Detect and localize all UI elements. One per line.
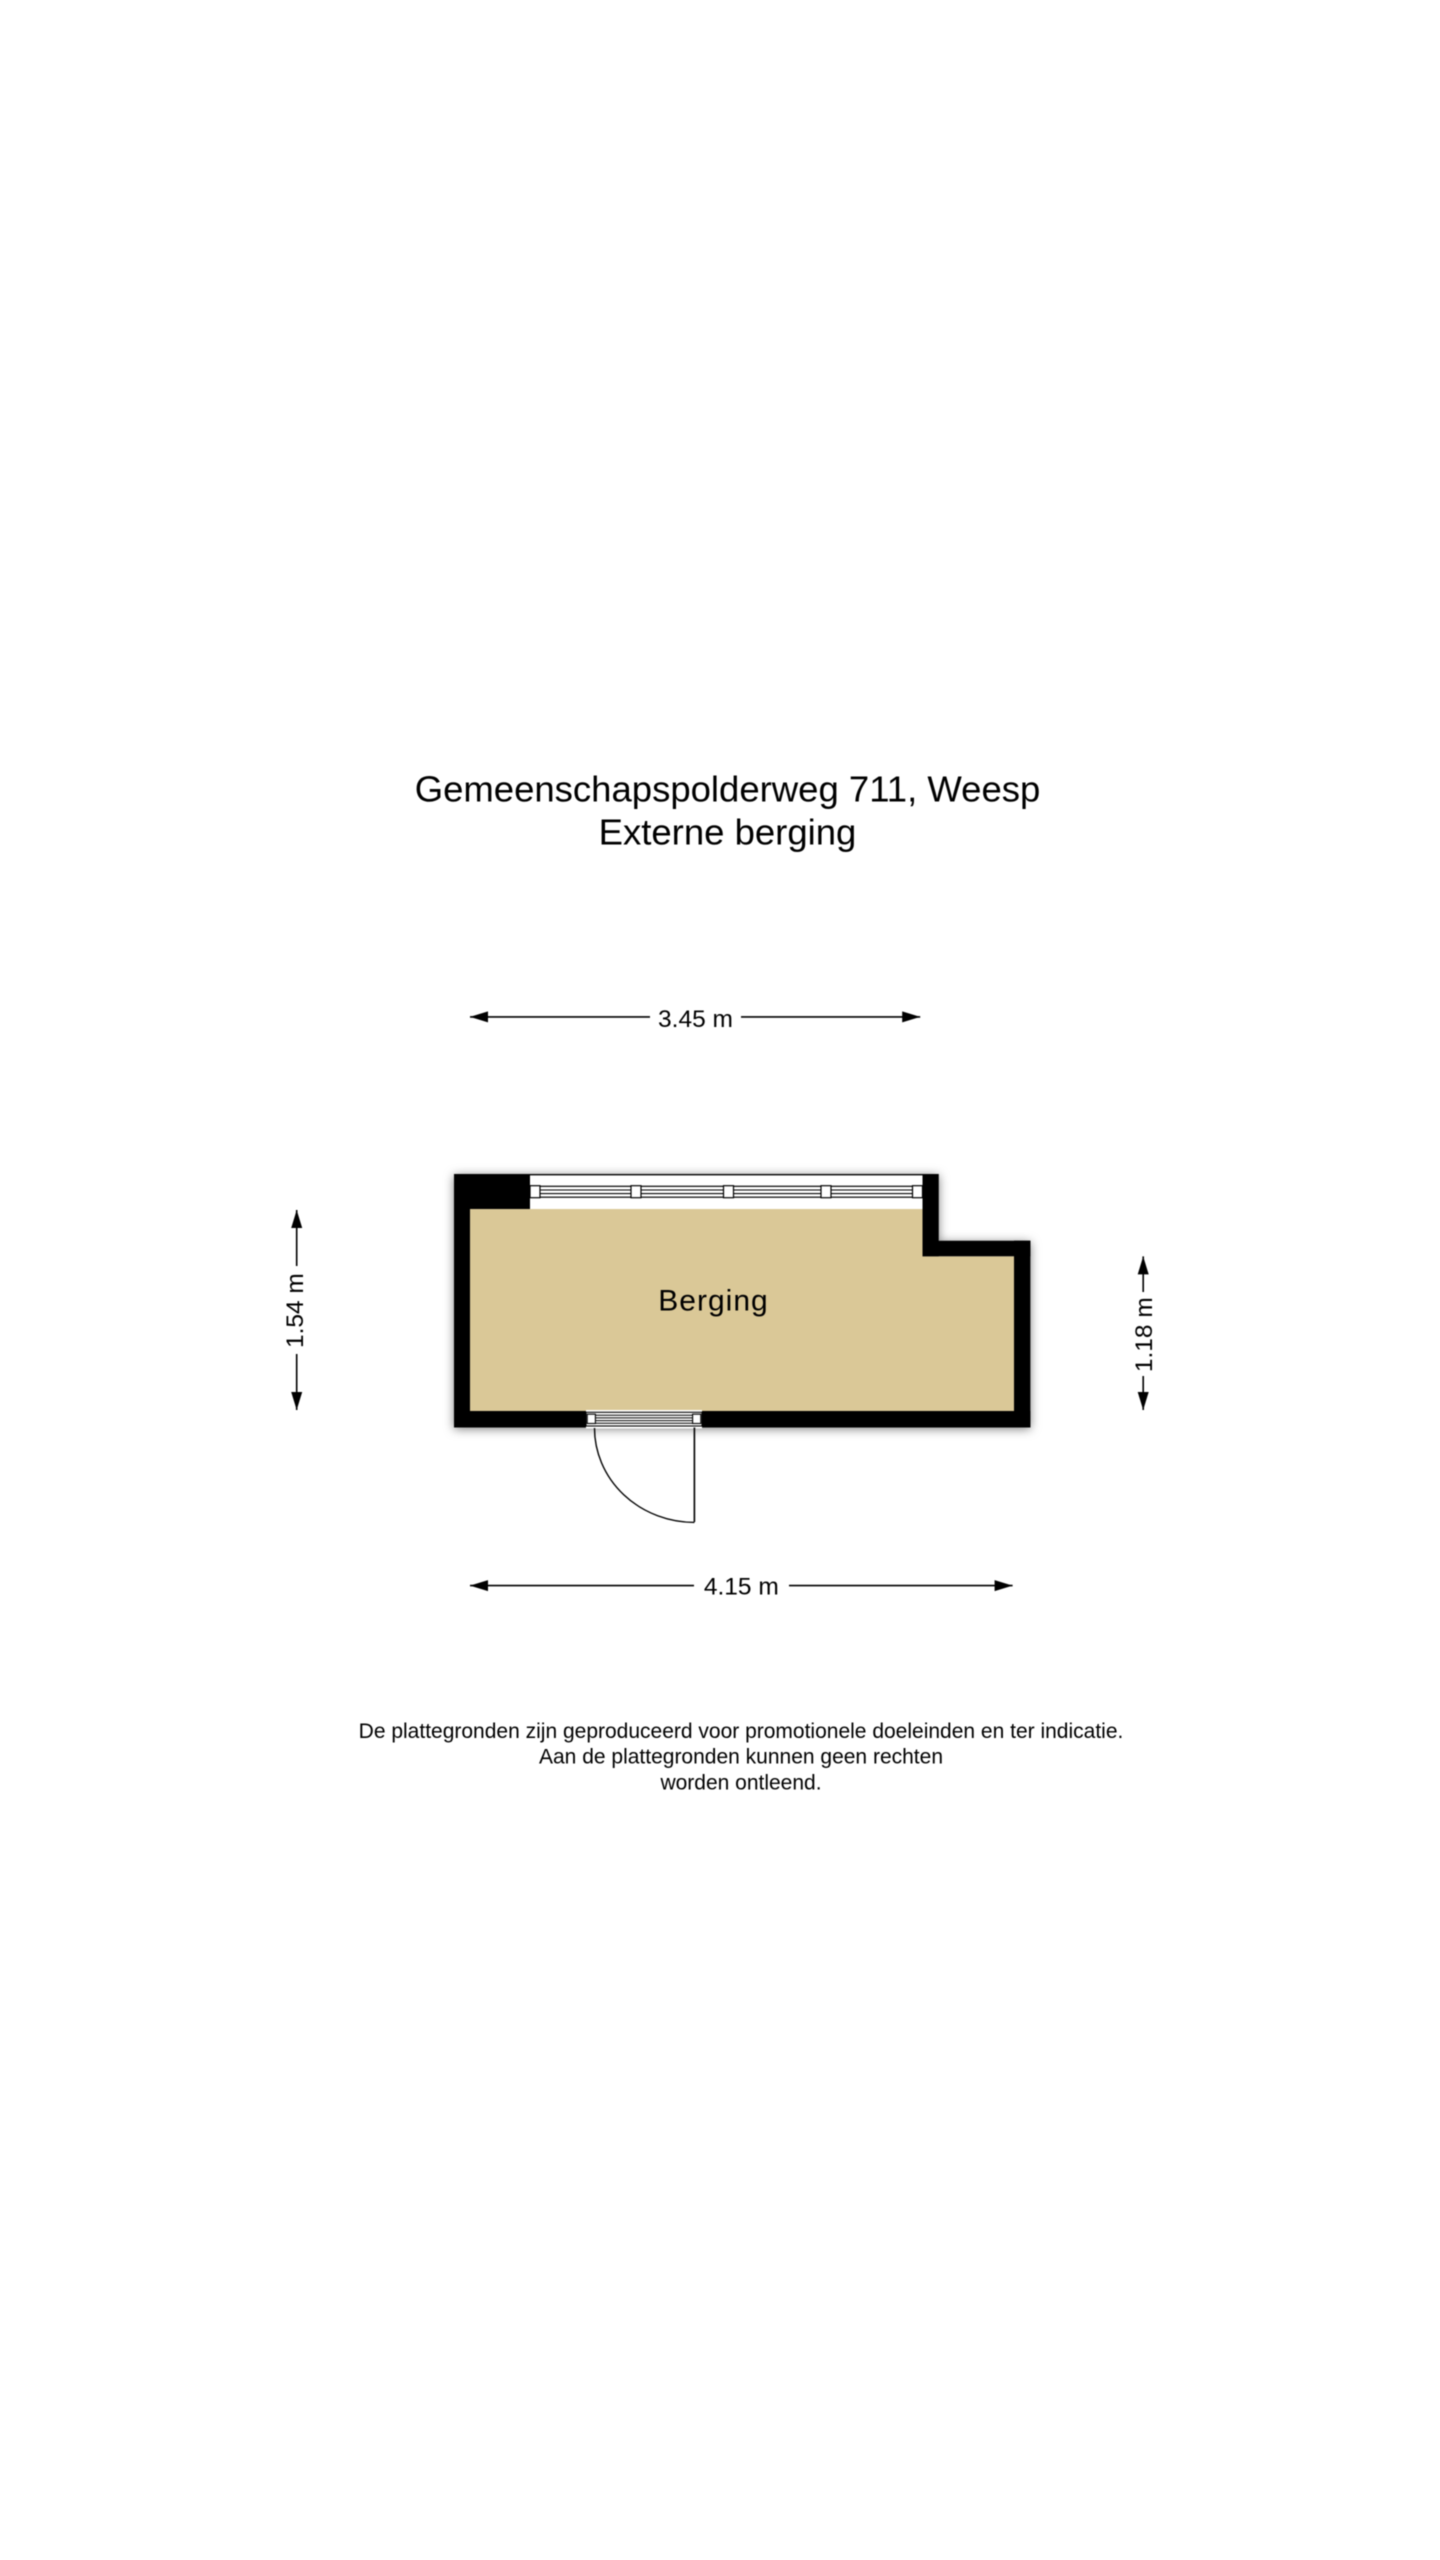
svg-text:Aan de plattegronden kunnen ge: Aan de plattegronden kunnen geen rechten <box>539 1746 943 1769</box>
svg-text:Externe berging: Externe berging <box>599 812 857 853</box>
svg-text:De plattegronden zijn geproduc: De plattegronden zijn geproduceerd voor … <box>359 1720 1124 1743</box>
svg-text:4.15 m: 4.15 m <box>704 1574 779 1601</box>
svg-text:3.45 m: 3.45 m <box>658 1006 733 1033</box>
svg-text:1.18 m: 1.18 m <box>1131 1297 1158 1372</box>
svg-text:1.54 m: 1.54 m <box>282 1273 309 1348</box>
svg-text:worden ontleend.: worden ontleend. <box>659 1771 821 1794</box>
svg-text:Berging: Berging <box>658 1285 768 1318</box>
svg-text:Gemeenschapspolderweg 711, Wee: Gemeenschapspolderweg 711, Weesp <box>415 769 1041 810</box>
